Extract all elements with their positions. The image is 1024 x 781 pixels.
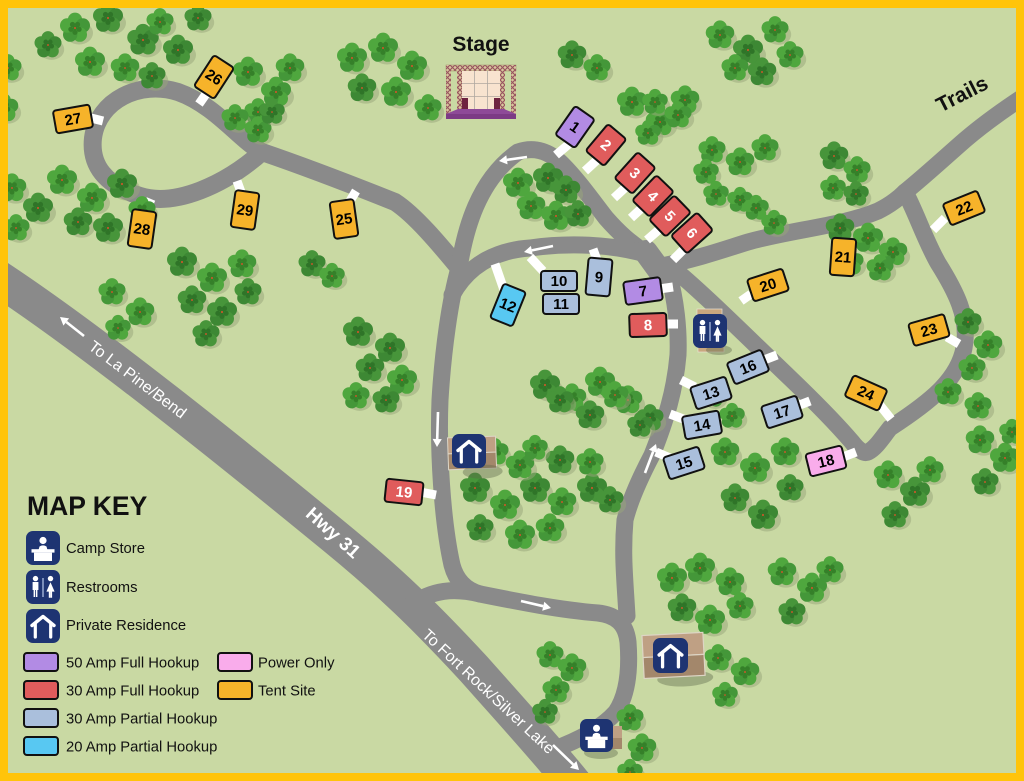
svg-text:20 Amp Partial Hookup: 20 Amp Partial Hookup <box>66 740 217 756</box>
svg-text:Stage: Stage <box>452 33 509 56</box>
svg-text:11: 11 <box>553 296 569 313</box>
svg-text:8: 8 <box>644 317 653 334</box>
svg-text:Tent Site: Tent Site <box>258 684 316 700</box>
svg-text:Restrooms: Restrooms <box>66 580 138 596</box>
svg-text:28: 28 <box>132 220 151 239</box>
svg-text:27: 27 <box>63 110 82 130</box>
svg-text:19: 19 <box>395 483 413 502</box>
svg-text:9: 9 <box>594 269 604 287</box>
svg-text:Camp Store: Camp Store <box>66 541 145 557</box>
svg-text:Private Residence: Private Residence <box>66 618 186 634</box>
svg-text:21: 21 <box>834 249 852 267</box>
svg-text:30 Amp Full Hookup: 30 Amp Full Hookup <box>66 684 199 700</box>
svg-text:25: 25 <box>335 210 354 229</box>
svg-text:MAP KEY: MAP KEY <box>27 491 148 521</box>
svg-text:30 Amp Partial Hookup: 30 Amp Partial Hookup <box>66 712 217 728</box>
svg-text:Power Only: Power Only <box>258 656 335 672</box>
svg-text:29: 29 <box>235 201 254 220</box>
svg-text:50 Amp Full Hookup: 50 Amp Full Hookup <box>66 656 199 672</box>
svg-text:10: 10 <box>551 273 568 290</box>
